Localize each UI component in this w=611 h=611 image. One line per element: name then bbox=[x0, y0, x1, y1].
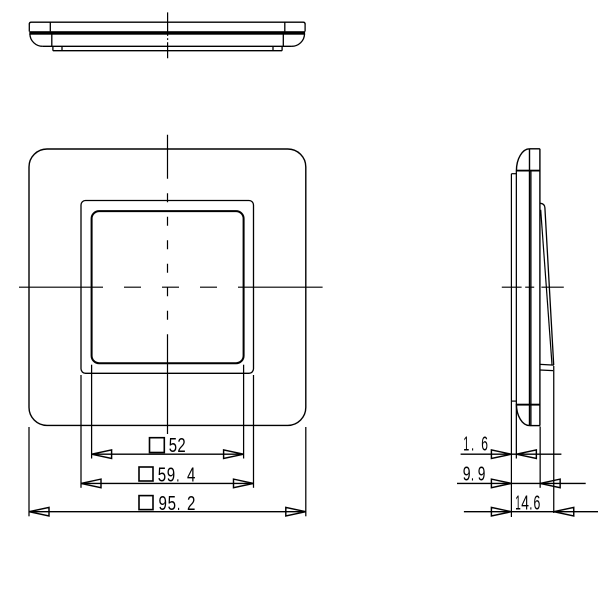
svg-text:9: 9 bbox=[159, 492, 167, 515]
svg-text:6: 6 bbox=[481, 433, 488, 456]
svg-text:6: 6 bbox=[534, 491, 541, 514]
svg-text:1: 1 bbox=[515, 491, 521, 514]
svg-text:.: . bbox=[176, 463, 179, 486]
svg-text:5: 5 bbox=[168, 492, 176, 515]
svg-text:1: 1 bbox=[463, 433, 469, 456]
svg-text:5: 5 bbox=[169, 434, 177, 457]
svg-text:9: 9 bbox=[463, 463, 471, 486]
svg-text:5: 5 bbox=[158, 463, 166, 486]
svg-text:9: 9 bbox=[478, 463, 486, 486]
svg-text:4: 4 bbox=[187, 463, 195, 486]
svg-text:.: . bbox=[529, 491, 532, 514]
svg-text:.: . bbox=[471, 433, 474, 456]
svg-text:.: . bbox=[471, 463, 474, 486]
svg-text:2: 2 bbox=[177, 434, 185, 457]
svg-text:4: 4 bbox=[521, 491, 529, 514]
svg-text:9: 9 bbox=[167, 463, 175, 486]
svg-text:.: . bbox=[177, 492, 180, 515]
svg-text:2: 2 bbox=[187, 492, 195, 515]
